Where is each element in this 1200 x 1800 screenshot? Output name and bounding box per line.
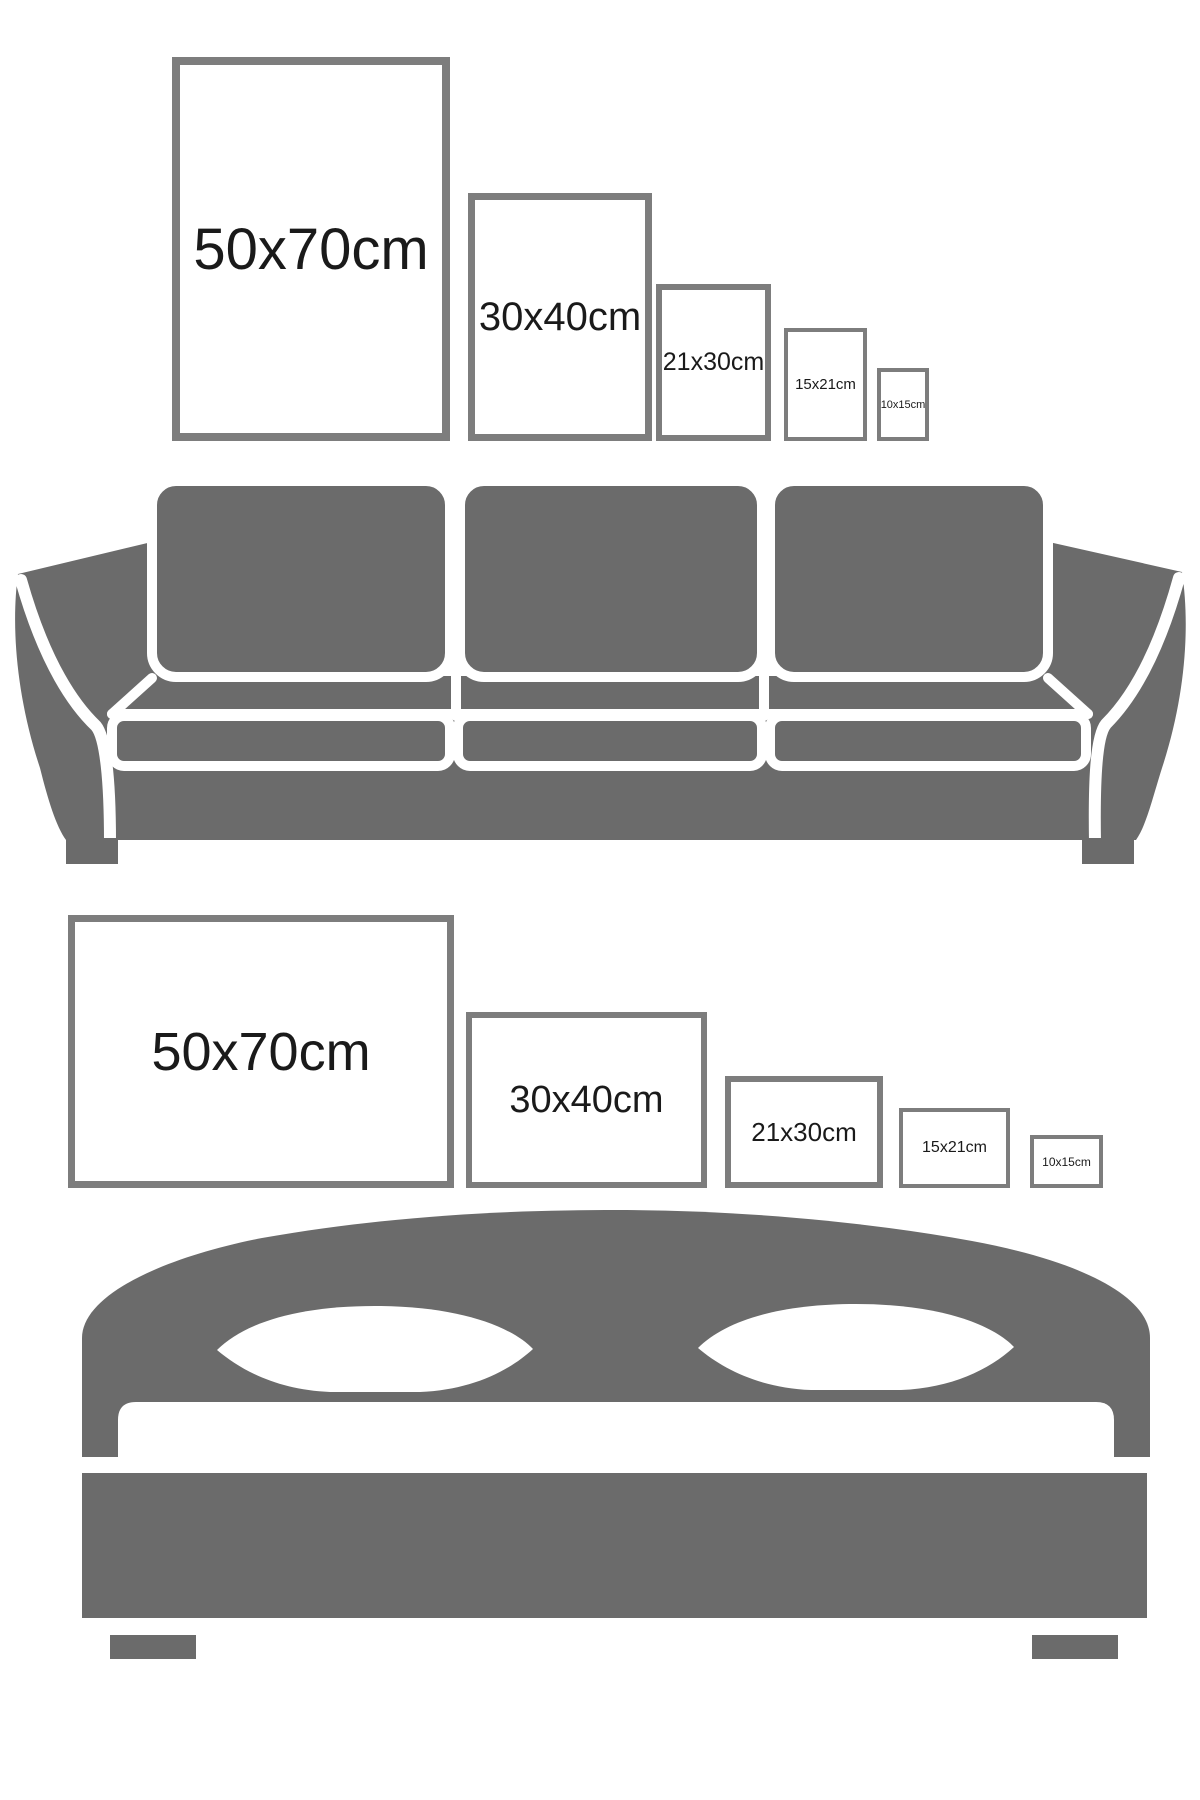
back-cushion-left <box>152 481 450 677</box>
size-label: 30x40cm <box>509 1079 663 1122</box>
size-frame-50x70-landscape: 50x70cm <box>68 915 454 1188</box>
size-label: 21x30cm <box>751 1117 857 1148</box>
bed-base <box>82 1473 1147 1618</box>
size-frame-15x21-portrait: 15x21cm <box>784 328 867 441</box>
seat-cushion-left <box>112 716 450 766</box>
seat-cushion-middle <box>458 716 762 766</box>
size-label: 15x21cm <box>922 1139 987 1157</box>
size-frame-21x30-portrait: 21x30cm <box>656 284 771 441</box>
size-label: 10x15cm <box>881 399 926 411</box>
size-label: 50x70cm <box>151 1021 370 1083</box>
size-label: 50x70cm <box>193 216 428 283</box>
size-frame-50x70-portrait: 50x70cm <box>172 57 450 441</box>
size-label: 15x21cm <box>795 376 856 393</box>
bed-icon <box>0 1190 1200 1690</box>
size-frame-10x15-landscape: 10x15cm <box>1030 1135 1103 1188</box>
size-frame-21x30-landscape: 21x30cm <box>725 1076 883 1188</box>
bed-leg-left <box>110 1635 196 1659</box>
back-cushion-right <box>770 481 1048 677</box>
mattress <box>118 1402 1114 1458</box>
size-label: 21x30cm <box>663 348 764 377</box>
size-label: 30x40cm <box>479 295 641 340</box>
size-frame-30x40-portrait: 30x40cm <box>468 193 652 441</box>
sofa-leg-left <box>66 838 118 864</box>
size-frame-15x21-landscape: 15x21cm <box>899 1108 1010 1188</box>
sofa-icon <box>0 440 1200 890</box>
size-frame-10x15-portrait: 10x15cm <box>877 368 929 441</box>
size-label: 10x15cm <box>1042 1155 1091 1169</box>
seat-cushion-right <box>770 716 1086 766</box>
size-frame-30x40-landscape: 30x40cm <box>466 1012 707 1188</box>
back-cushion-middle <box>460 481 762 677</box>
bed-leg-right <box>1032 1635 1118 1659</box>
sofa-leg-right <box>1082 838 1134 864</box>
